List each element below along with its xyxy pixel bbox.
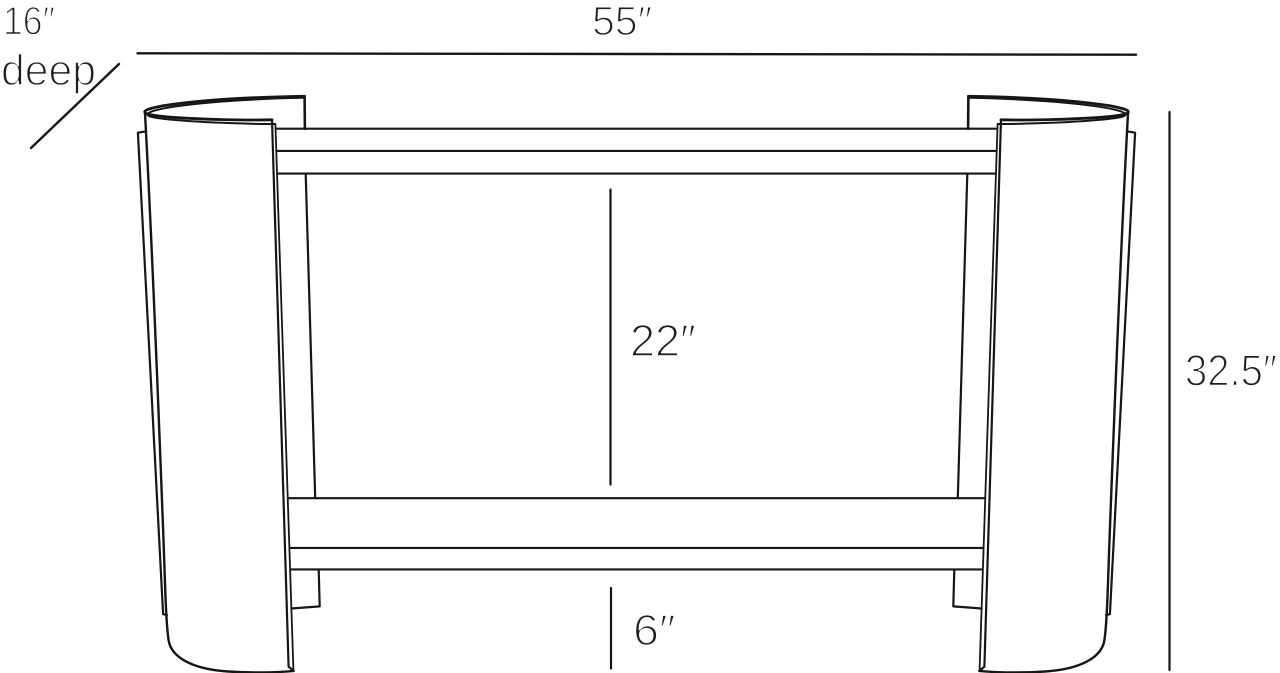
svg-text:6″: 6″ bbox=[633, 607, 676, 655]
svg-text:22″: 22″ bbox=[630, 315, 696, 366]
svg-text:deep: deep bbox=[1, 47, 96, 95]
svg-text:32.5″: 32.5″ bbox=[1185, 347, 1277, 396]
svg-text:55″: 55″ bbox=[592, 0, 652, 44]
svg-text:16″: 16″ bbox=[3, 0, 55, 43]
